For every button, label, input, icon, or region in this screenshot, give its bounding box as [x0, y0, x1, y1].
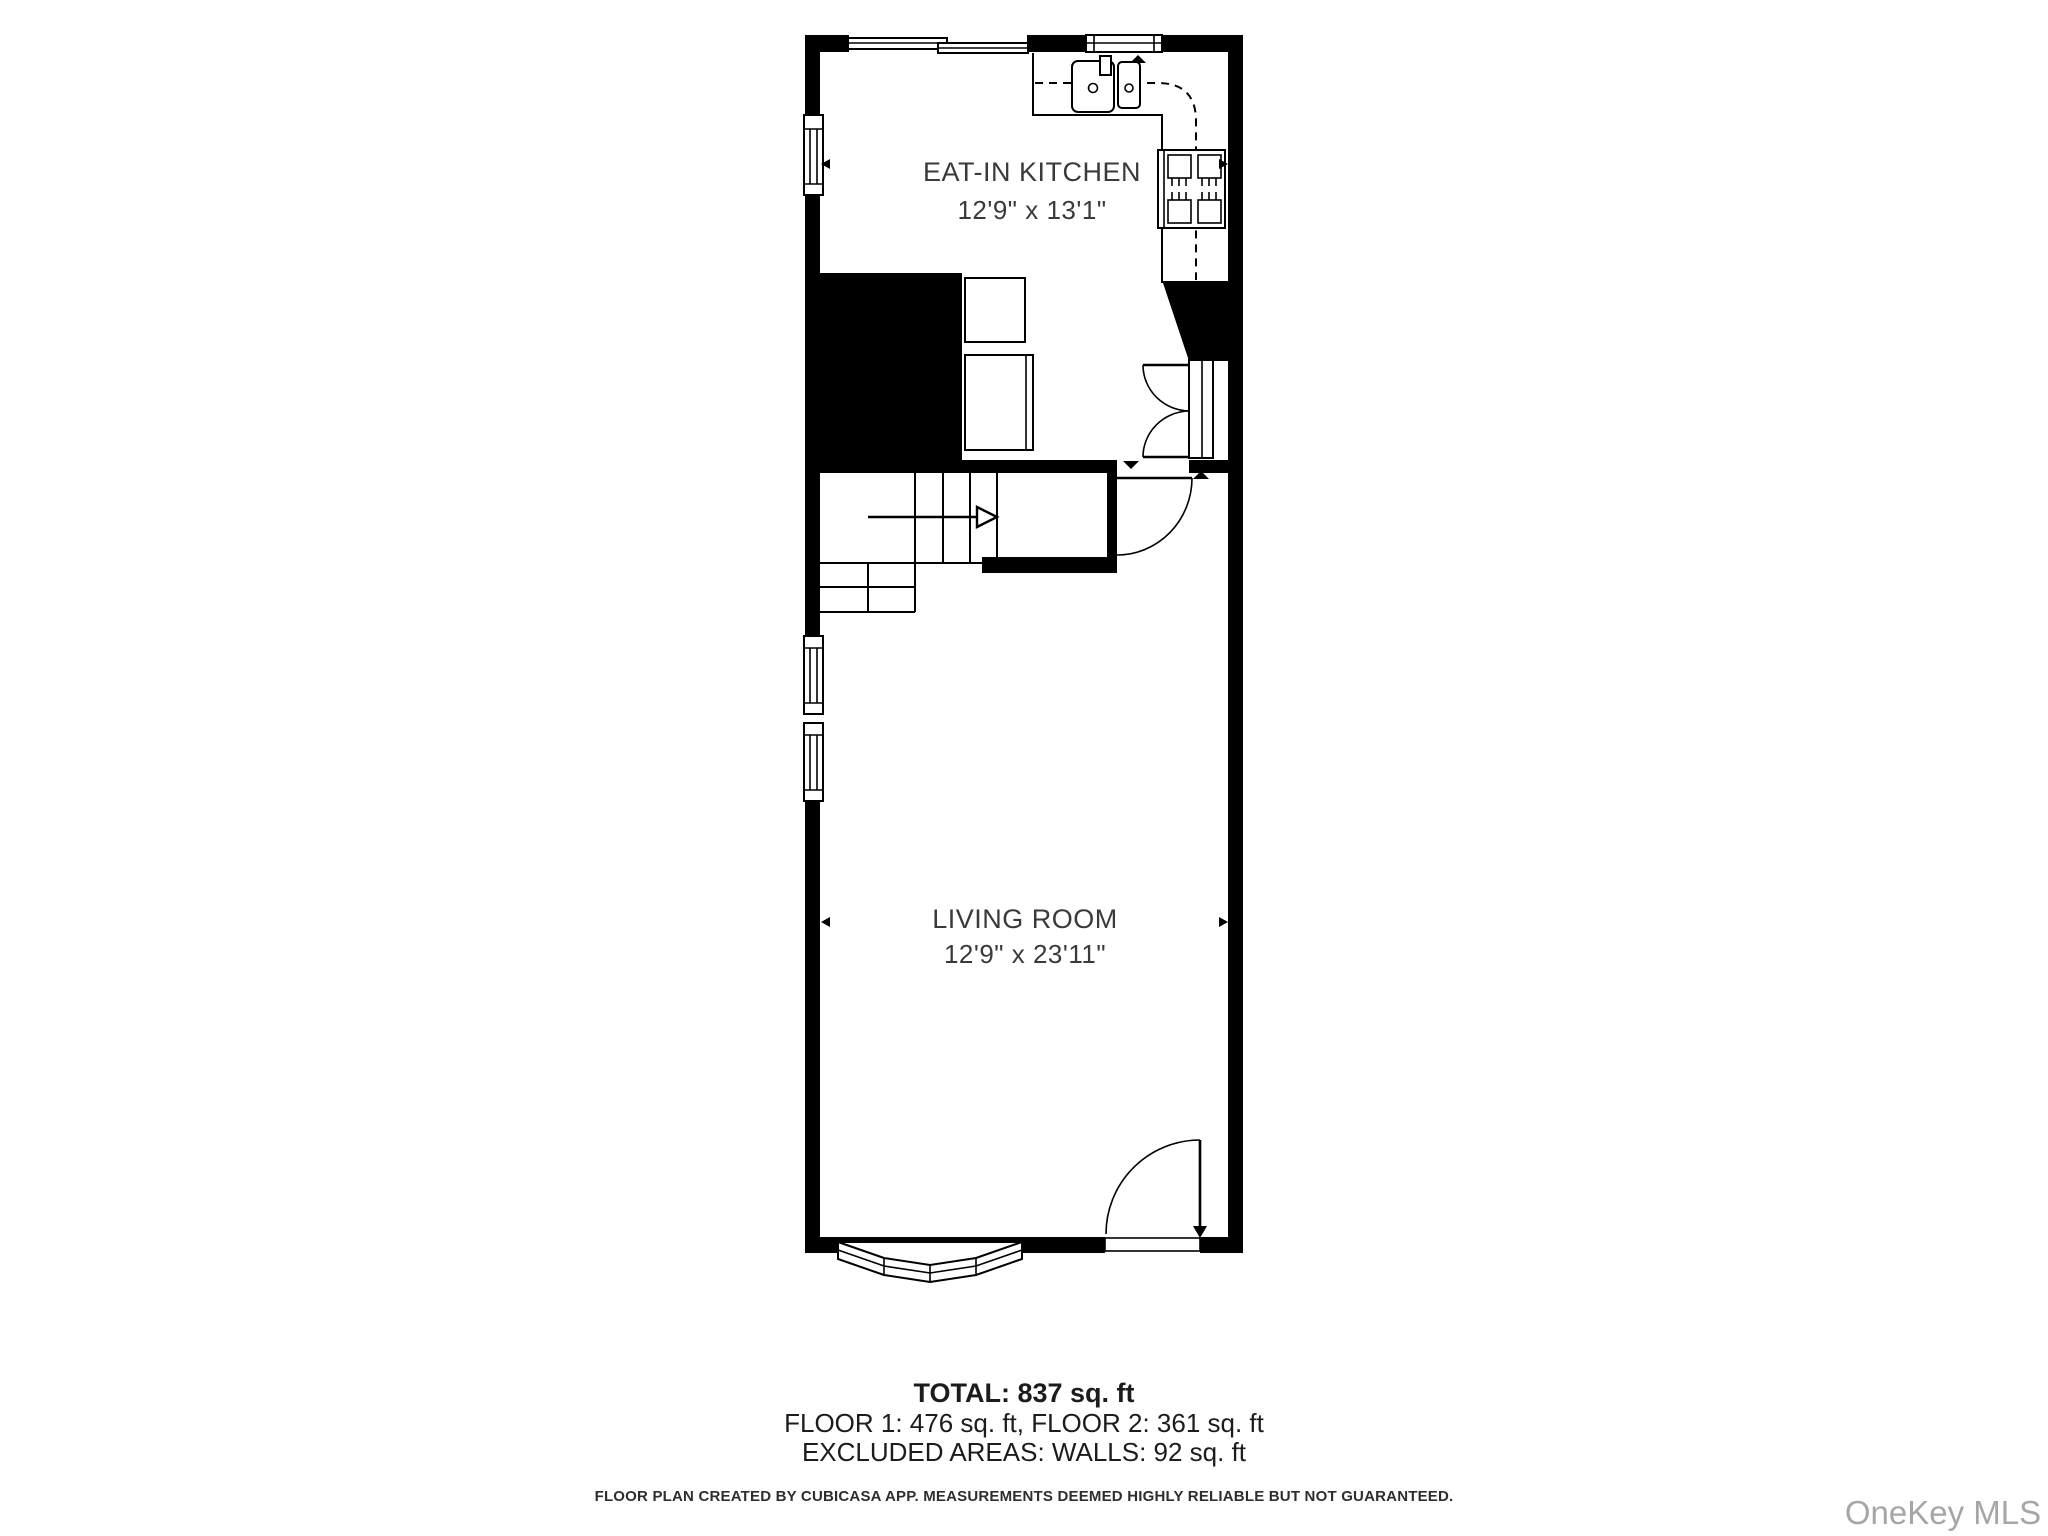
living-room-window-2 [804, 723, 823, 801]
kitchen-dimensions: 12'9" x 13'1" [957, 195, 1106, 225]
living-room-dimensions: 12'9" x 23'11" [944, 939, 1106, 969]
excluded-areas: EXCLUDED AREAS: WALLS: 92 sq. ft [802, 1437, 1247, 1467]
living-room-window-1 [804, 636, 823, 714]
level-marker-hall-down [1123, 461, 1139, 469]
hall-door [1117, 478, 1192, 555]
closet-door-panel [1189, 360, 1213, 458]
top-window-a [848, 38, 1028, 53]
watermark: OneKey MLS [1845, 1494, 2041, 1531]
living-room-label: LIVING ROOM [932, 904, 1118, 934]
entry-door-arrowhead [1193, 1226, 1207, 1238]
level-marker-top-window [1130, 55, 1146, 63]
measure-arrow-living-right [1219, 917, 1228, 927]
entry-door [1105, 1140, 1207, 1251]
kitchen-window-left [804, 115, 823, 195]
total-area: TOTAL: 837 sq. ft [913, 1378, 1134, 1408]
appliance [965, 355, 1033, 450]
staircase [820, 472, 997, 612]
stair-direction-arrow [868, 507, 997, 527]
kitchen-label: EAT-IN KITCHEN [923, 157, 1141, 187]
stove [1158, 150, 1225, 228]
bay-window [838, 1242, 1022, 1282]
kitchen-sink [1072, 56, 1140, 112]
floor-areas: FLOOR 1: 476 sq. ft, FLOOR 2: 361 sq. ft [784, 1408, 1265, 1438]
refrigerator [965, 278, 1025, 342]
floor-plan-page: EAT-IN KITCHEN 12'9" x 13'1" LIVING ROOM… [0, 0, 2048, 1536]
top-window-b [1086, 35, 1162, 52]
disclaimer: FLOOR PLAN CREATED BY CUBICASA APP. MEAS… [595, 1488, 1454, 1505]
closet-bifold-doors [1143, 365, 1189, 457]
measure-arrow-living-left [821, 917, 830, 927]
floor-plan-drawing: EAT-IN KITCHEN 12'9" x 13'1" LIVING ROOM… [0, 0, 2048, 1536]
